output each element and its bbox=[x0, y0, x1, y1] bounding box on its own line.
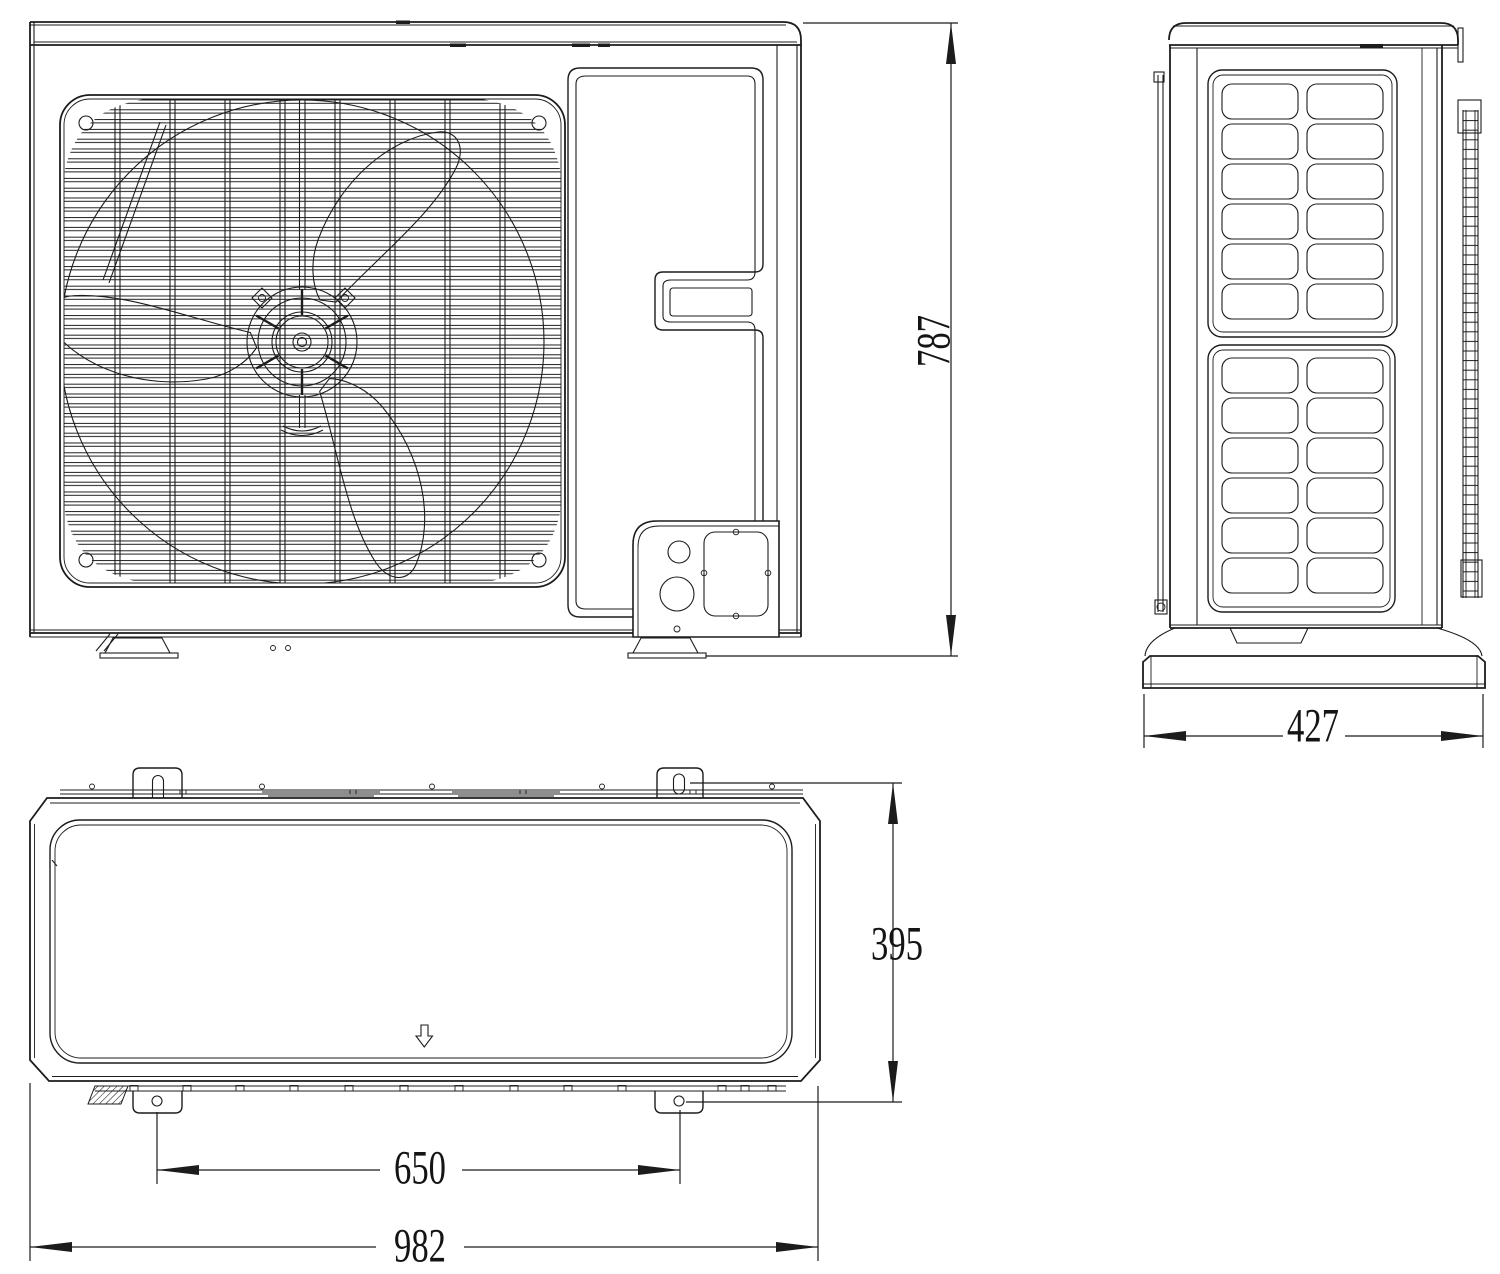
fan-grille bbox=[41, 95, 565, 587]
louver-panel-lower bbox=[1208, 345, 1395, 612]
drain-pan-hatch bbox=[88, 1086, 128, 1104]
side-base-rail bbox=[1143, 628, 1485, 688]
dimension-width-label: 982 bbox=[394, 1220, 446, 1273]
foot-right bbox=[633, 638, 698, 653]
cap-vent-slot bbox=[1360, 44, 1383, 48]
top-view bbox=[30, 768, 820, 1113]
coil-fins bbox=[1458, 100, 1482, 598]
foot-bolt-hole bbox=[152, 1096, 162, 1106]
front-view bbox=[30, 21, 801, 659]
dimension-mounting-depth-label: 395 bbox=[871, 918, 923, 971]
louver-panel-upper bbox=[1208, 70, 1397, 337]
drawing-canvas: 787 427 395 650 bbox=[0, 0, 1500, 1274]
top-rear-strip bbox=[60, 784, 803, 794]
screw bbox=[770, 784, 775, 789]
side-view bbox=[1143, 23, 1485, 688]
dimension-foot-spacing-label: 650 bbox=[394, 1142, 446, 1195]
drain-hole bbox=[286, 646, 291, 651]
dimension-depth-label: 427 bbox=[1287, 700, 1339, 753]
front-top-cap bbox=[30, 21, 801, 48]
side-top-cap bbox=[1169, 23, 1463, 62]
dimension-height-label: 787 bbox=[908, 315, 961, 367]
mounting-slot bbox=[674, 774, 685, 794]
dimension-foot-spacing: 650 bbox=[157, 1110, 680, 1195]
foot-left bbox=[105, 638, 170, 653]
cap-vent-slot bbox=[450, 44, 466, 48]
top-body bbox=[30, 792, 820, 1081]
panel-handle bbox=[670, 288, 752, 316]
front-feet bbox=[96, 634, 706, 658]
mounting-foot-front-left bbox=[133, 1091, 182, 1113]
dimension-depth: 427 bbox=[1144, 694, 1483, 753]
foot-bolt-hole bbox=[674, 1096, 684, 1106]
screw bbox=[260, 784, 265, 789]
cap-vent-slot bbox=[396, 21, 410, 25]
grille-slats bbox=[64, 99, 561, 583]
airflow-down-arrow-icon bbox=[416, 1025, 433, 1047]
cap-vent-slot bbox=[598, 44, 610, 48]
cap-vent-slot bbox=[572, 44, 590, 48]
mounting-tab-rear-left bbox=[133, 768, 182, 798]
top-base-strip bbox=[88, 1086, 786, 1105]
dimension-mounting-depth: 395 bbox=[686, 783, 923, 1102]
screw bbox=[600, 784, 605, 789]
dimension-drawing-page: 787 427 395 650 bbox=[0, 0, 1500, 1274]
drain-hole bbox=[271, 646, 276, 651]
screw bbox=[90, 784, 95, 789]
screw bbox=[430, 784, 435, 789]
valve-panel bbox=[633, 521, 779, 637]
